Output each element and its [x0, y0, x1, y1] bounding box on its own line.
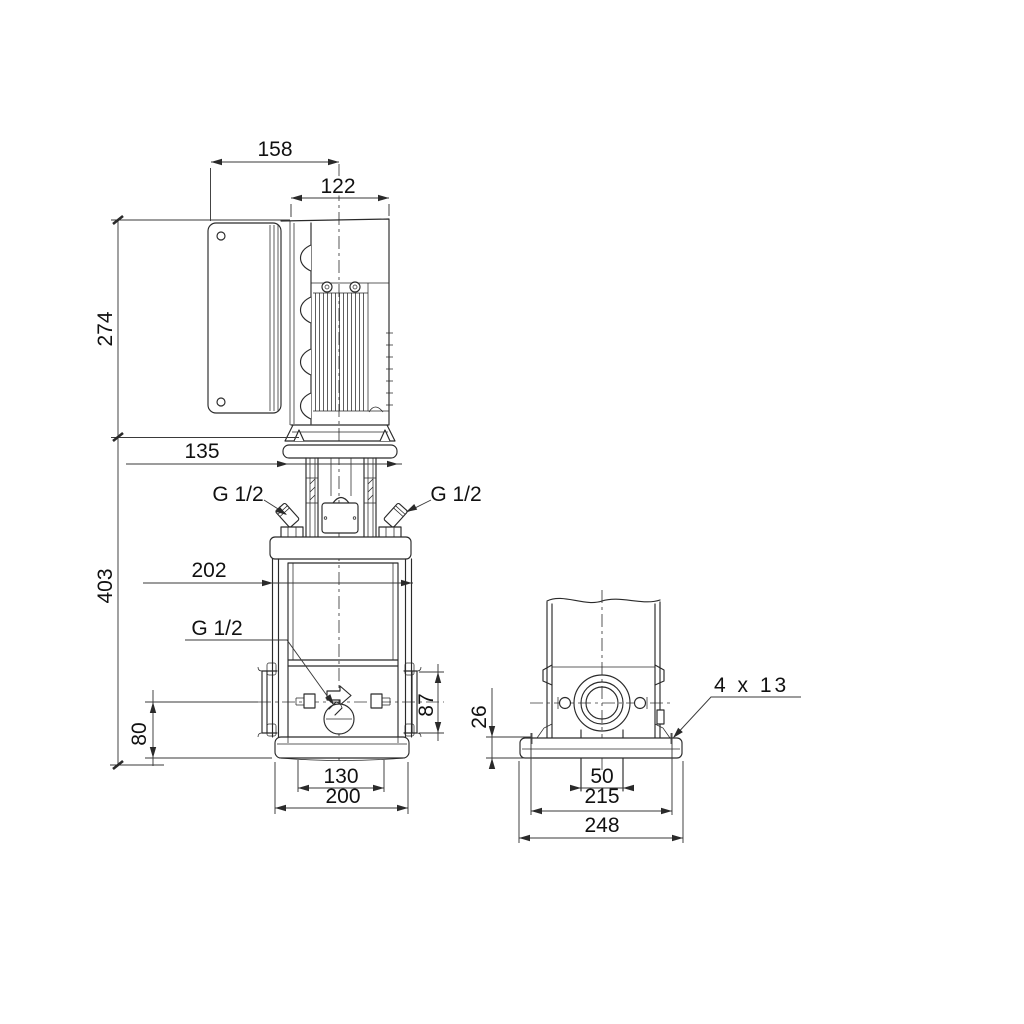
- dim-87-label: 87: [415, 693, 438, 716]
- pump-dimensional-drawing-page: 158 122 274 403 135 2: [0, 0, 1024, 1024]
- dim-202-label: 202: [191, 559, 226, 582]
- drain-label: G 1/2: [191, 617, 242, 640]
- dim-135-label: 135: [184, 440, 219, 463]
- dim-122-label: 122: [320, 175, 355, 198]
- plug-icon: [371, 694, 382, 708]
- port-left-label: G 1/2: [212, 483, 263, 506]
- pump-base-side: [275, 737, 409, 761]
- dim-80-label: 80: [128, 722, 151, 745]
- bolt-holes-label: 4 x 13: [714, 674, 789, 697]
- dim-200-label: 200: [325, 785, 360, 808]
- mounting-hole-icon: [217, 232, 225, 240]
- background: [0, 0, 1024, 1024]
- port-right-label: G 1/2: [430, 483, 481, 506]
- nameplate: [322, 503, 358, 533]
- plug-icon: [304, 694, 315, 708]
- screw-icon: [322, 282, 332, 292]
- dim-215-label: 215: [584, 785, 619, 808]
- screw-icon: [350, 282, 360, 292]
- dim-158-label: 158: [257, 138, 292, 161]
- plug-icon: [560, 698, 571, 709]
- dim-26-label: 26: [468, 705, 491, 728]
- dim-274-label: 274: [94, 311, 117, 346]
- plug-icon: [635, 698, 646, 709]
- pump-dimensional-drawing: 158 122 274 403 135 2: [0, 0, 1024, 1024]
- dim-248-label: 248: [584, 814, 619, 837]
- control-box: [208, 223, 281, 413]
- dim-403-label: 403: [94, 568, 117, 603]
- sensor-plug: [657, 710, 664, 724]
- mounting-hole-icon: [217, 398, 225, 406]
- head-flange: [270, 537, 411, 559]
